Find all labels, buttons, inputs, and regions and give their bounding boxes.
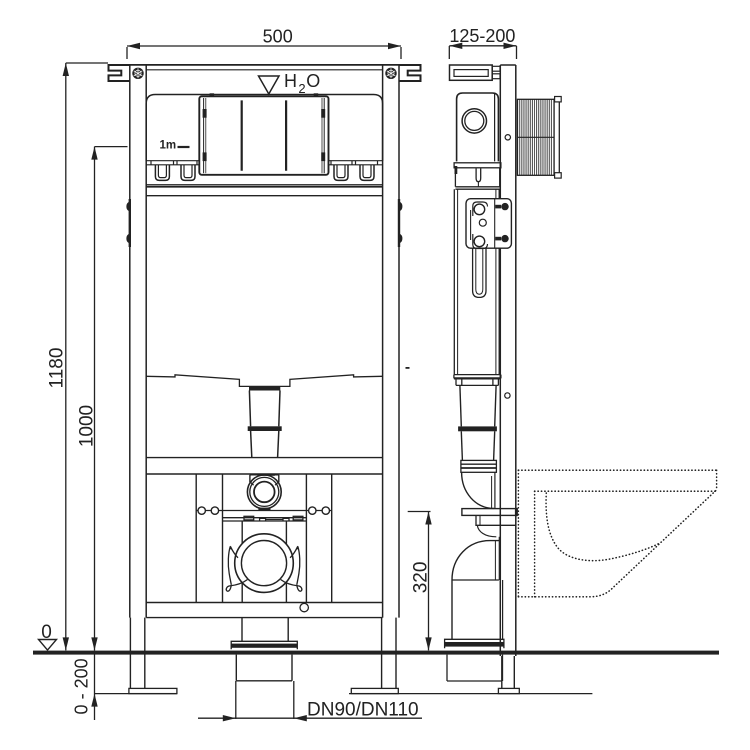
- svg-text:500: 500: [263, 26, 293, 46]
- svg-text:H: H: [284, 71, 297, 91]
- svg-text:0 - 200: 0 - 200: [72, 658, 92, 714]
- svg-text:O: O: [306, 71, 320, 91]
- svg-text:2: 2: [298, 81, 305, 96]
- svg-text:125-200: 125-200: [449, 26, 515, 46]
- svg-text:1180: 1180: [47, 348, 68, 389]
- svg-text:1m: 1m: [160, 140, 177, 152]
- svg-text:DN90/DN110: DN90/DN110: [307, 700, 419, 721]
